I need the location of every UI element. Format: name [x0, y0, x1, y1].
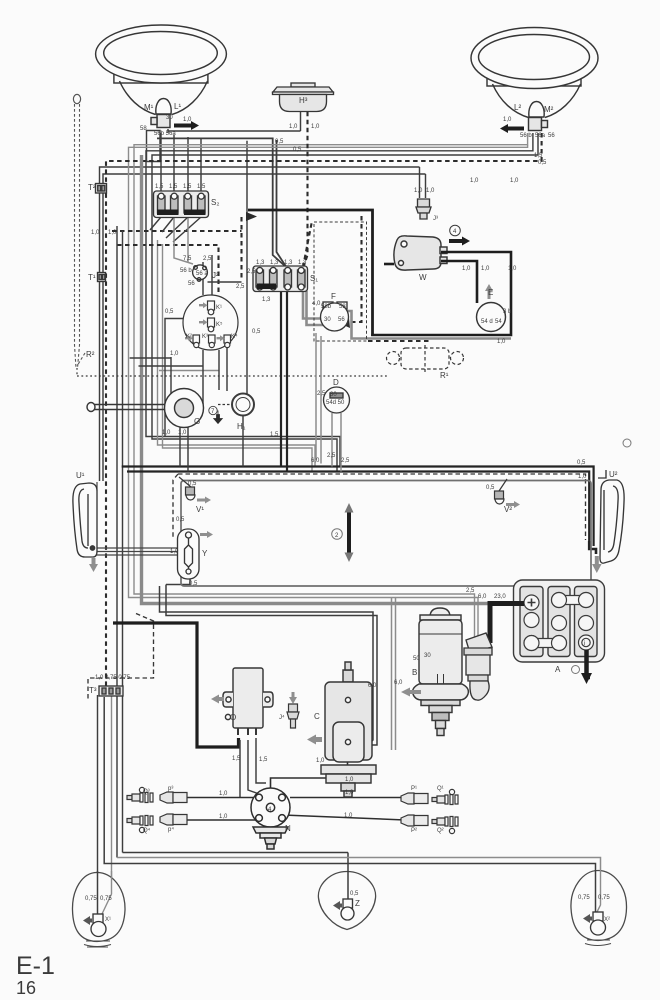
- svg-text:1,5: 1,5: [534, 153, 543, 159]
- svg-text:J³: J³: [433, 216, 438, 222]
- svg-text:R¹: R¹: [440, 371, 449, 380]
- svg-text:0,75: 0,75: [578, 895, 590, 901]
- svg-text:1,0: 1,0: [510, 178, 519, 184]
- svg-text:1,0 0,75 0,75: 1,0 0,75 0,75: [95, 675, 131, 681]
- svg-text:6,0: 6,0: [368, 683, 377, 689]
- svg-text:2,5: 2,5: [247, 269, 256, 275]
- svg-text:S₂: S₂: [211, 198, 219, 207]
- svg-text:1,0: 1,0: [162, 430, 171, 436]
- svg-text:E-1: E-1: [16, 952, 55, 980]
- svg-text:K³: K³: [202, 334, 208, 340]
- svg-text:G: G: [194, 417, 200, 426]
- svg-text:6,0: 6,0: [311, 458, 320, 464]
- svg-text:1,0: 1,0: [170, 351, 179, 357]
- svg-text:0,5: 0,5: [577, 460, 586, 466]
- svg-text:H³: H³: [299, 96, 308, 105]
- svg-text:1,0: 1,0: [497, 339, 506, 345]
- svg-text:4: 4: [453, 229, 457, 235]
- svg-text:30: 30: [330, 392, 337, 398]
- svg-text:1,3: 1,3: [284, 260, 293, 266]
- svg-text:54 d: 54 d: [481, 319, 493, 325]
- svg-text:W: W: [419, 273, 427, 282]
- svg-text:1,5: 1,5: [169, 184, 178, 190]
- svg-text:50: 50: [413, 656, 420, 662]
- svg-text:Q⁴: Q⁴: [143, 827, 151, 834]
- svg-text:0,5: 0,5: [189, 581, 198, 587]
- svg-text:T³: T³: [89, 686, 97, 695]
- svg-text:1,3: 1,3: [270, 260, 279, 266]
- svg-text:Q²: Q²: [437, 828, 444, 834]
- svg-text:1,0: 1,0: [345, 777, 354, 783]
- svg-text:N: N: [285, 824, 291, 833]
- svg-text:0,5: 0,5: [275, 139, 284, 145]
- svg-text:C: C: [314, 712, 320, 721]
- svg-text:1,0: 1,0: [503, 117, 512, 123]
- svg-text:0,5: 0,5: [486, 485, 495, 491]
- svg-text:K¹: K¹: [216, 305, 222, 311]
- svg-text:0,5: 0,5: [188, 481, 197, 487]
- svg-text:0,5: 0,5: [165, 309, 174, 315]
- svg-text:1,0: 1,0: [578, 474, 587, 480]
- svg-text:E: E: [488, 288, 493, 297]
- svg-text:56 a: 56 a: [196, 271, 208, 277]
- svg-text:1,0: 1,0: [183, 117, 192, 123]
- svg-text:1,0: 1,0: [311, 124, 320, 130]
- svg-text:D: D: [333, 378, 339, 387]
- svg-text:U¹: U¹: [76, 471, 85, 480]
- svg-text:54d 50: 54d 50: [326, 400, 345, 406]
- svg-text:56 b: 56 b: [180, 268, 192, 274]
- svg-text:3 b: 3 b: [503, 309, 512, 315]
- svg-text:1,0: 1,0: [462, 266, 471, 272]
- svg-text:2,5: 2,5: [317, 391, 326, 397]
- svg-text:58b: 58b: [321, 304, 332, 310]
- svg-text:Q³: Q³: [143, 789, 150, 795]
- svg-text:Q¹: Q¹: [437, 786, 444, 792]
- svg-text:7,5: 7,5: [183, 256, 192, 262]
- svg-text:1,3: 1,3: [256, 260, 265, 266]
- svg-text:K⁵: K⁵: [216, 321, 223, 328]
- svg-text:30: 30: [424, 653, 431, 659]
- svg-text:56: 56: [188, 281, 195, 287]
- svg-text:P¹: P¹: [411, 786, 417, 792]
- svg-text:1,0: 1,0: [108, 230, 117, 236]
- svg-text:J²: J²: [212, 271, 219, 280]
- svg-text:1,0: 1,0: [316, 758, 325, 764]
- svg-text:1,0: 1,0: [481, 266, 490, 272]
- svg-text:J⁴: J⁴: [279, 714, 285, 721]
- svg-text:1,5: 1,5: [183, 184, 192, 190]
- svg-text:T¹: T¹: [88, 273, 96, 282]
- svg-text:1,5: 1,5: [155, 184, 164, 190]
- svg-text:56b 56a: 56b 56a: [154, 131, 176, 137]
- svg-text:M²: M²: [544, 105, 554, 114]
- svg-text:X²: X²: [604, 917, 610, 923]
- svg-text:1,0: 1,0: [91, 230, 100, 236]
- svg-text:2,5: 2,5: [236, 284, 245, 290]
- svg-text:1,5: 1,5: [259, 757, 268, 763]
- svg-text:23,0: 23,0: [494, 594, 506, 600]
- svg-text:56: 56: [548, 133, 555, 139]
- svg-text:0,5: 0,5: [293, 147, 302, 153]
- svg-text:0,5: 0,5: [350, 891, 359, 897]
- svg-text:V¹: V¹: [196, 505, 204, 514]
- svg-text:1,0: 1,0: [178, 430, 187, 436]
- svg-text:M¹: M¹: [144, 103, 154, 112]
- svg-text:K²: K²: [186, 334, 192, 340]
- svg-text:U²: U²: [609, 470, 618, 479]
- svg-text:30: 30: [166, 115, 173, 121]
- svg-text:6,0: 6,0: [394, 680, 403, 686]
- svg-text:1,0: 1,0: [345, 790, 354, 796]
- svg-text:2,5: 2,5: [327, 453, 336, 459]
- svg-text:R²: R²: [86, 350, 95, 359]
- svg-text:1,0: 1,0: [508, 266, 517, 272]
- svg-text:1,5: 1,5: [232, 756, 241, 762]
- svg-text:30: 30: [324, 317, 331, 323]
- svg-text:S₁: S₁: [310, 274, 318, 283]
- svg-text:0,5: 0,5: [538, 160, 547, 166]
- svg-text:O: O: [230, 713, 236, 722]
- svg-text:p³: p³: [168, 786, 173, 792]
- svg-text:2,5: 2,5: [203, 256, 212, 262]
- svg-text:2,5: 2,5: [341, 458, 350, 464]
- svg-text:1,0: 1,0: [219, 791, 228, 797]
- svg-text:0,75: 0,75: [85, 896, 97, 902]
- svg-text:2: 2: [335, 533, 339, 539]
- svg-text:Z: Z: [355, 899, 360, 908]
- svg-text:X¹: X¹: [105, 917, 111, 923]
- svg-text:58: 58: [339, 304, 346, 310]
- svg-text:1,0: 1,0: [426, 188, 435, 194]
- svg-text:V²: V²: [504, 505, 512, 514]
- svg-text:0,75: 0,75: [100, 896, 112, 902]
- svg-text:1,5: 1,5: [270, 432, 279, 438]
- svg-text:i: i: [584, 641, 585, 647]
- svg-text:2,5: 2,5: [466, 588, 475, 594]
- svg-text:56: 56: [338, 317, 345, 323]
- svg-text:0,75: 0,75: [598, 895, 610, 901]
- svg-text:K⁴: K⁴: [231, 333, 238, 340]
- svg-text:0,5: 0,5: [252, 329, 261, 335]
- svg-text:B: B: [412, 668, 417, 677]
- svg-text:1,0: 1,0: [470, 178, 479, 184]
- svg-text:56a: 56a: [535, 133, 546, 139]
- svg-text:H₁: H₁: [237, 422, 246, 431]
- svg-text:1,3: 1,3: [298, 260, 307, 266]
- svg-text:1,0: 1,0: [170, 549, 179, 555]
- svg-text:P²: P²: [411, 828, 417, 834]
- svg-text:1,5: 1,5: [197, 184, 206, 190]
- svg-text:1,0: 1,0: [289, 124, 298, 130]
- svg-text:A: A: [555, 665, 561, 674]
- svg-text:56 b: 56 b: [520, 133, 532, 139]
- svg-text:54: 54: [495, 319, 502, 325]
- svg-text:0,5: 0,5: [176, 517, 185, 523]
- svg-text:1,3: 1,3: [262, 297, 271, 303]
- svg-text:1,0: 1,0: [219, 814, 228, 820]
- svg-text:L¹: L¹: [174, 102, 181, 111]
- svg-text:T²: T²: [88, 183, 96, 192]
- svg-text:16: 16: [16, 978, 36, 998]
- svg-text:4,0: 4,0: [312, 301, 321, 307]
- svg-text:6,0: 6,0: [478, 594, 487, 600]
- svg-text:Y: Y: [202, 549, 208, 558]
- svg-text:L²: L²: [514, 103, 521, 112]
- svg-text:1,0: 1,0: [344, 813, 353, 819]
- svg-text:p⁴: p⁴: [168, 826, 174, 833]
- svg-text:58: 58: [140, 126, 147, 132]
- svg-text:F: F: [331, 292, 336, 301]
- svg-text:1,0: 1,0: [414, 188, 423, 194]
